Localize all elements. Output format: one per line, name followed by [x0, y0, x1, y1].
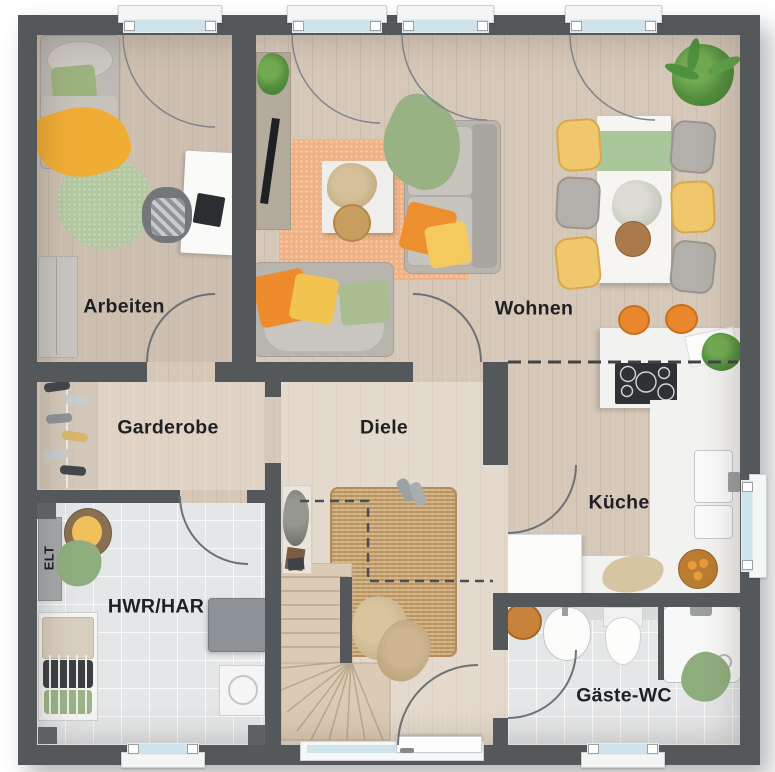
door-arc-entrance — [398, 665, 478, 745]
door-arc-kueche — [508, 465, 576, 533]
room-label-gaeste-wc: Gäste-WC — [576, 685, 672, 708]
room-label-wohnen: Wohnen — [495, 298, 573, 321]
room-label-kueche: Küche — [588, 492, 649, 515]
room-label-diele: Diele — [360, 417, 408, 440]
room-label-garderobe: Garderobe — [117, 417, 218, 440]
door-arc-wohnen — [413, 294, 481, 362]
room-label-elt: ELT — [42, 546, 57, 571]
room-label-arbeiten: Arbeiten — [83, 296, 165, 319]
door-arc-hwr — [180, 496, 248, 564]
stair-opening-dashed-line — [300, 501, 493, 581]
plan-linework-overlay — [0, 0, 775, 772]
door-arc-wc — [508, 650, 576, 718]
room-label-hwr: HWR/HAR — [108, 596, 204, 619]
floor-plan: Arbeiten Wohnen Garderobe Diele Küche HW… — [0, 0, 775, 772]
window-swing-arcs — [123, 35, 655, 127]
